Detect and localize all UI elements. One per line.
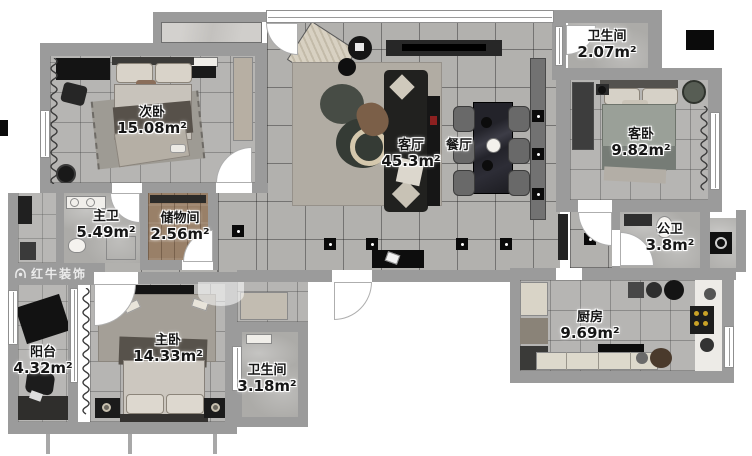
basin xyxy=(86,198,95,207)
door-opening-master-bath xyxy=(112,183,142,193)
closet xyxy=(240,292,288,320)
wardrobe xyxy=(572,82,594,150)
light-marker xyxy=(456,238,468,250)
room-label-public-bath: 公卫 3.8m² xyxy=(646,223,695,255)
wall xyxy=(237,270,332,282)
tall-cabinet xyxy=(520,282,548,316)
wall xyxy=(700,210,710,272)
tv xyxy=(402,44,486,51)
wall xyxy=(510,371,734,383)
wall xyxy=(153,12,270,22)
slippers xyxy=(170,144,186,153)
wall xyxy=(736,210,746,272)
pot xyxy=(598,86,606,94)
basket xyxy=(650,348,672,368)
room-label-balcony: 阳台 4.32m² xyxy=(13,346,72,378)
washbasin xyxy=(246,334,272,344)
pot xyxy=(646,282,662,298)
plant xyxy=(682,80,706,104)
room-label-secondary-bedroom: 次卧 15.08m² xyxy=(117,106,187,138)
cabinet-divider xyxy=(630,352,631,370)
window-kitchen xyxy=(724,326,734,368)
dining-chair xyxy=(508,170,530,196)
room-label-bathroom-south: 卫生间 3.18m² xyxy=(237,364,296,396)
door-opening-kitchen xyxy=(556,268,582,280)
shoe-cabinet xyxy=(558,214,568,260)
light-marker xyxy=(232,225,244,237)
wall xyxy=(298,322,308,427)
balcony-railing xyxy=(46,434,50,454)
light-marker xyxy=(532,110,544,122)
window-guest-bedroom xyxy=(710,112,720,190)
wall xyxy=(153,22,161,43)
counter xyxy=(598,344,644,352)
wall-washer-glow xyxy=(198,282,244,306)
pillow xyxy=(166,394,204,414)
pillow xyxy=(126,394,164,414)
burner xyxy=(694,311,699,316)
floor-plan: 次卧 15.08m² 主卫 5.49m² 储物间 2.56m² 阳台 4.32m… xyxy=(0,0,752,456)
light-marker xyxy=(366,238,378,250)
pot xyxy=(636,352,648,364)
burner xyxy=(694,321,699,326)
wall xyxy=(255,43,267,193)
room-label-master-bedroom: 主卧 14.33m² xyxy=(133,334,203,366)
light-marker xyxy=(500,238,512,250)
dining-chair xyxy=(453,106,475,132)
room-label-master-bath: 主卫 5.49m² xyxy=(76,210,135,242)
door-opening-guest-bedroom xyxy=(578,200,612,212)
ac-unit xyxy=(686,30,714,50)
burner xyxy=(703,311,708,316)
plant xyxy=(700,338,714,352)
light-marker xyxy=(532,188,544,200)
dining-chair xyxy=(508,106,530,132)
plate xyxy=(482,160,493,171)
room-label-guest-bedroom: 客卧 9.82m² xyxy=(611,128,670,160)
light-marker xyxy=(324,238,336,250)
tray xyxy=(355,43,364,51)
wall xyxy=(232,417,308,427)
balcony-railing xyxy=(128,434,132,454)
bed-headboard xyxy=(600,80,678,88)
dining-chair xyxy=(453,170,475,196)
wall xyxy=(56,193,64,263)
wok xyxy=(664,280,684,300)
lamp xyxy=(211,403,220,412)
wall xyxy=(510,268,520,383)
wall xyxy=(648,23,662,70)
room-label-kitchen: 厨房 9.69m² xyxy=(560,311,619,343)
door-opening-secondary-bedroom xyxy=(216,183,252,193)
wall xyxy=(232,322,308,332)
window-bathroom-north xyxy=(555,26,563,66)
wall xyxy=(86,422,237,434)
lamp xyxy=(102,403,111,412)
jar xyxy=(704,288,716,300)
laundry-unit xyxy=(18,196,32,224)
window-living-top xyxy=(266,10,554,23)
curtain xyxy=(80,288,92,420)
cabinet-divider xyxy=(598,352,599,370)
room-label-living-room: 客厅 45.3m² xyxy=(381,139,440,171)
balcony-railing xyxy=(213,434,217,454)
door-opening-public-bath xyxy=(612,230,620,266)
burner xyxy=(703,321,708,326)
wall xyxy=(556,80,570,212)
wall xyxy=(140,193,148,263)
pillow xyxy=(155,63,192,83)
bay-window-sill xyxy=(161,22,262,43)
nightstand xyxy=(190,66,216,78)
storage-shelf xyxy=(150,195,206,203)
door-opening-master-bedroom xyxy=(94,272,138,284)
wall xyxy=(552,68,722,80)
curtain xyxy=(698,106,710,196)
plate xyxy=(481,117,492,128)
small-cabinet xyxy=(628,282,644,298)
bowl xyxy=(486,138,501,153)
basin xyxy=(70,198,79,207)
curtain xyxy=(48,58,60,184)
ac-unit xyxy=(0,120,8,136)
desk xyxy=(56,58,110,80)
window-balcony xyxy=(8,290,18,345)
watermark-logo-icon xyxy=(14,267,27,280)
wall xyxy=(8,422,98,434)
door-swing-entry xyxy=(334,282,372,320)
wall xyxy=(8,193,18,265)
cabinet xyxy=(20,242,36,260)
floor-lamp xyxy=(338,58,356,76)
stove xyxy=(690,306,714,334)
wall xyxy=(372,270,512,282)
washer-drum xyxy=(715,237,727,249)
wardrobe xyxy=(233,57,253,141)
room-label-dining-room: 餐厅 xyxy=(446,139,472,153)
light-marker xyxy=(532,148,544,160)
door-opening-entry xyxy=(332,270,372,282)
room-label-bathroom-north: 卫生间 2.07m² xyxy=(577,30,636,62)
dining-chair xyxy=(508,138,530,164)
wall xyxy=(552,10,662,23)
cabinet-divider xyxy=(566,352,567,370)
room-label-storage: 储物间 2.56m² xyxy=(150,212,209,244)
decor-item xyxy=(430,116,437,125)
watermark-text: 红牛装饰 xyxy=(31,265,87,282)
wall xyxy=(40,43,267,56)
tall-cabinet xyxy=(520,318,548,344)
watermark: 红牛装饰 xyxy=(14,265,87,282)
